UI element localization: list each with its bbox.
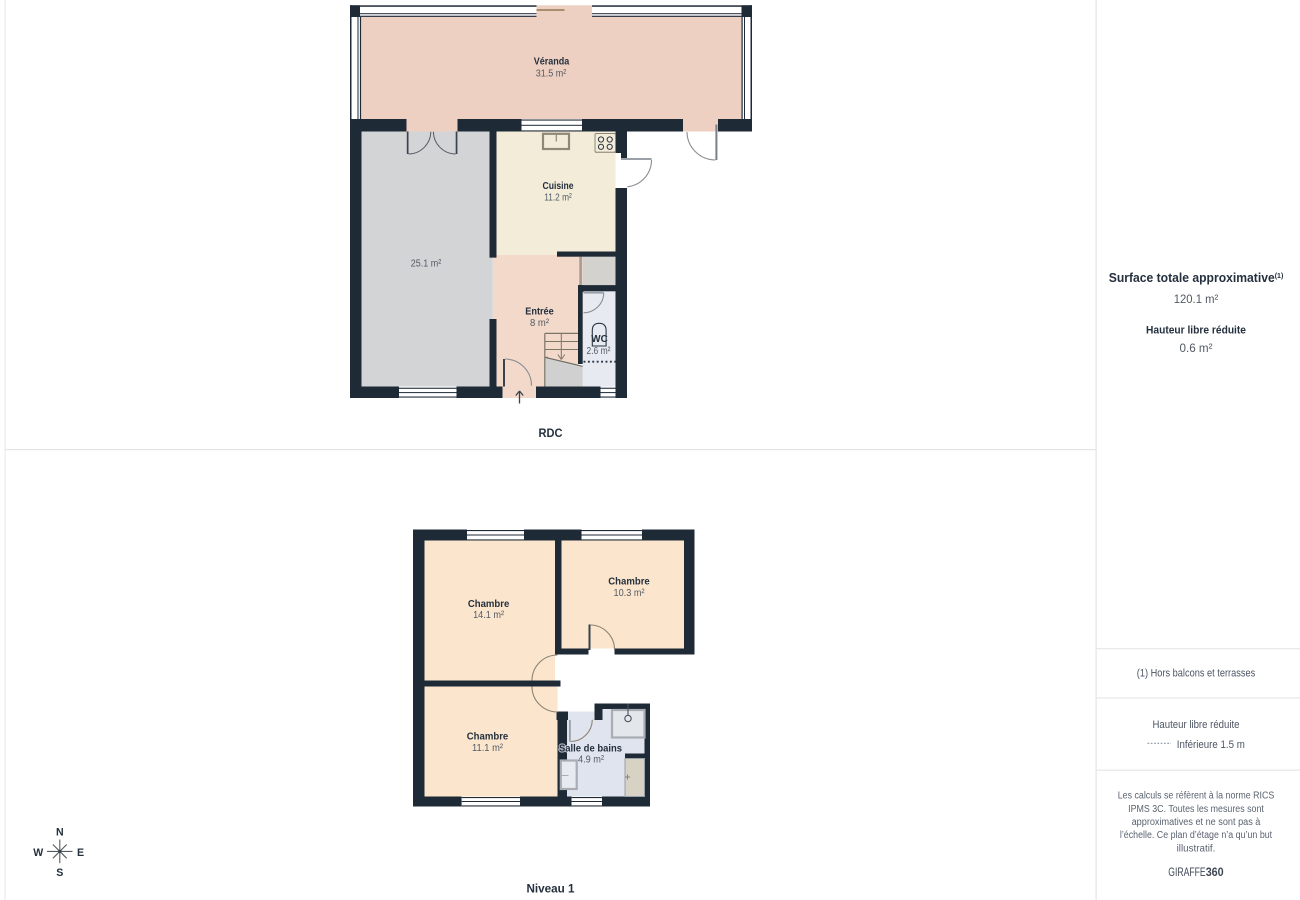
svg-text:Entrée: Entrée <box>525 306 554 317</box>
svg-text:4.9 m²: 4.9 m² <box>578 755 605 766</box>
svg-text:S: S <box>56 867 63 879</box>
svg-text:W: W <box>33 847 43 859</box>
svg-text:Chambre: Chambre <box>468 599 510 610</box>
svg-text:GIRAFFE360: GIRAFFE360 <box>1168 865 1224 879</box>
svg-text:2.6 m²: 2.6 m² <box>587 346 612 357</box>
svg-text:11.1 m²: 11.1 m² <box>472 743 504 754</box>
svg-text:Cuisine: Cuisine <box>543 181 574 192</box>
svg-text:Salle de bains: Salle de bains <box>559 743 622 754</box>
svg-text:l’échelle. Ce plan d’étage n’a: l’échelle. Ce plan d’étage n’a qu’un but <box>1120 830 1272 841</box>
svg-text:RDC: RDC <box>539 426 563 440</box>
svg-text:8 m²: 8 m² <box>530 318 550 329</box>
svg-text:25.1 m²: 25.1 m² <box>411 259 442 270</box>
svg-text:0.6 m²: 0.6 m² <box>1180 341 1213 355</box>
svg-text:N: N <box>56 827 64 839</box>
svg-text:Niveau 1: Niveau 1 <box>527 882 575 896</box>
svg-text:Véranda: Véranda <box>534 56 570 67</box>
svg-text:11.2 m²: 11.2 m² <box>544 193 572 204</box>
svg-text:14.1 m²: 14.1 m² <box>473 610 505 621</box>
svg-text:approximatives et ne sont pas: approximatives et ne sont pas à <box>1132 817 1261 828</box>
svg-text:Chambre: Chambre <box>467 732 509 743</box>
svg-text:Hauteur libre réduite: Hauteur libre réduite <box>1153 719 1240 731</box>
svg-text:10.3 m²: 10.3 m² <box>614 588 646 599</box>
svg-text:(1) Hors balcons et terrasses: (1) Hors balcons et terrasses <box>1137 668 1256 680</box>
svg-text:Hauteur libre réduite: Hauteur libre réduite <box>1146 325 1246 337</box>
svg-text:Chambre: Chambre <box>608 576 650 587</box>
svg-text:IPMS 3C. Toutes les mesures so: IPMS 3C. Toutes les mesures sont <box>1128 804 1264 815</box>
svg-text:Surface totale approximative(1: Surface totale approximative(1) <box>1109 271 1284 285</box>
svg-text:E: E <box>77 847 84 859</box>
svg-text:Inférieure 1.5 m: Inférieure 1.5 m <box>1177 739 1245 751</box>
svg-text:illustratif.: illustratif. <box>1177 843 1216 854</box>
svg-text:31.5 m²: 31.5 m² <box>536 68 567 79</box>
svg-text:120.1 m²: 120.1 m² <box>1174 292 1219 306</box>
svg-text:Les calculs se réfèrent à la n: Les calculs se réfèrent à la norme RICS <box>1118 791 1275 802</box>
